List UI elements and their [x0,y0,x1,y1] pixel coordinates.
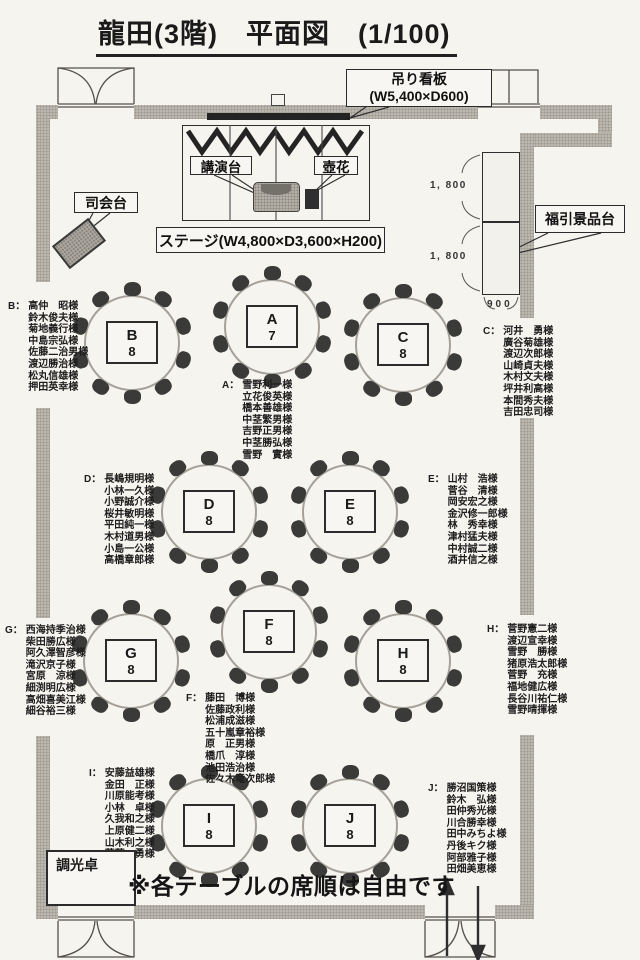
guest-names: 藤田 博様 佐藤政利様 松浦成滋様 五十嵐章裕様 原 正男様 橋爪 淳様 池田浩… [205,693,275,786]
dimension-1800-lower: 1, 800 [430,251,467,262]
table-count: 8 [128,344,135,359]
guest-names: 河井 勇様 廣谷菊雄様 渡辺次郎様 山崎貞夫様 木村文夫様 坪井利高様 本間秀夫… [503,326,553,419]
table-letter: A [267,311,278,328]
seat-shape [123,600,140,614]
guest-list-label: D： [84,474,101,567]
table-label-c: C 8 [377,323,429,366]
guest-list-label: G： [5,625,23,718]
seat-shape [395,284,412,298]
table-letter: C [398,329,409,346]
guest-names: 菅野憲二様 渡辺宣幸様 雪野 勝様 猪原浩太郎様 菅野 充様 福地健広様 長谷川… [507,624,567,717]
table-count: 8 [205,827,212,842]
table-label-e: E 8 [324,490,376,533]
mc-stand-callout: 司会台 [74,192,138,213]
table-letter: E [345,496,355,513]
seat-shape [342,765,359,779]
table-count: 8 [265,633,272,648]
door-bottom-left-icon [58,917,134,957]
seat-shape [201,559,218,573]
seat-shape [395,392,412,406]
table-label-j: J 8 [324,804,376,847]
table-label-d: D 8 [183,490,235,533]
guest-list-label: J： [428,783,444,876]
seat-shape [124,390,141,404]
table-letter: J [346,810,354,827]
dimmer-console-box: 調光卓 [46,850,136,906]
guest-names: 高仲 昭様 鈴木俊夫様 菊地義行様 中島宗弘様 佐藤二治男様 渡辺勝治様 松丸信… [28,301,88,394]
guest-list-b: B： 高仲 昭様 鈴木俊夫様 菊地義行様 中島宗弘様 佐藤二治男様 渡辺勝治様 … [8,301,88,394]
guest-list-d: D： 長嶋規明様 小林一久様 小野誠介様 桜井敏明様 平田純一様 木村道男様 小… [84,474,154,567]
door-top-left-icon [58,68,134,107]
podium-top-shape [261,184,291,195]
podium-callout: 講演台 [190,156,252,175]
floor-plan-scan: { "title": "龍田(3階) 平面図 (1/100)", "stage"… [0,0,640,960]
door-bottom-right-icon [425,917,495,957]
hanging-sign-bar [207,113,350,120]
seating-note: ※各テーブルの席順は自由です [128,867,455,901]
dimension-1800-upper: 1, 800 [430,180,467,191]
flower-vase-callout: 壺花 [314,156,358,175]
seat-shape [342,559,359,573]
guest-list-a: A： 雪野利一様 立花俊英様 橋本善雄様 中茎繁男様 吉野正男様 中茎勝弘様 雪… [222,380,292,461]
hanging-sign-label: 吊り看板 [391,71,447,88]
guest-list-label: C： [483,326,500,419]
table-count: 8 [346,827,353,842]
ceiling-fixture-icon [271,94,285,106]
guest-list-g: G： 西海持季治様 柴田勝広様 阿久澤智彦様 滝沢京子様 宮原 涼様 細渕明広様… [5,625,86,718]
flower-vase-shape [305,189,319,209]
guest-list-label: F： [186,693,202,786]
hanging-sign-size: (W5,400×D600) [369,88,468,105]
table-label-a: A 7 [246,305,298,348]
seat-shape [261,679,278,693]
table-count: 8 [205,513,212,528]
hanging-sign-callout: 吊り看板 (W5,400×D600) [346,69,492,107]
seat-shape [264,266,281,280]
table-label-b: B 8 [106,321,158,364]
seat-shape [123,708,140,722]
table-count: 8 [399,662,406,677]
table-letter: G [125,645,137,662]
stage-curtain-icon [188,131,362,152]
table-letter: F [264,616,273,633]
dimension-900: 900 [487,299,513,310]
guest-list-label: H： [487,624,504,717]
table-label-i: I 8 [183,804,235,847]
table-label-g: G 8 [105,639,157,682]
page-title: 龍田(3階) 平面図 (1/100) [96,12,457,57]
lecture-podium-shape [253,182,300,212]
guest-names: 山村 浩様 菅谷 清様 岡安宏之様 金沢修一郎様 林 秀幸様 津村猛夫様 中村誠… [448,474,508,567]
prize-table-callout: 福引景品台 [535,205,625,233]
stage-size-label: ステージ(W4,800×D3,600×H200) [156,227,385,253]
guest-list-c: C： 河井 勇様 廣谷菊雄様 渡辺次郎様 山崎貞夫様 木村文夫様 坪井利高様 本… [483,326,553,419]
table-count: 7 [268,328,275,343]
guest-names: 勝沼国策様 鈴木 弘様 田仲秀光様 川合勝幸様 田中みちよ様 丹後キク様 阿部雅… [447,783,507,876]
guest-list-label: E： [428,474,445,567]
table-count: 8 [127,662,134,677]
table-label-h: H 8 [377,639,429,682]
table-label-f: F 8 [243,610,295,653]
seat-shape [261,571,278,585]
seat-shape [395,600,412,614]
prize-table-shape [482,152,520,295]
table-letter: I [207,810,211,827]
table-letter: B [127,327,138,344]
table-count: 8 [399,346,406,361]
seat-shape [395,708,412,722]
guest-names: 安藤益雄様 金田 正様 川原能考様 小林 卓様 久我和之様 上原健二様 山木利之… [105,768,155,861]
guest-list-j: J： 勝沼国策様 鈴木 弘様 田仲秀光様 川合勝幸様 田中みちよ様 丹後キク様 … [428,783,507,876]
table-letter: D [204,496,215,513]
guest-list-f: F： 藤田 博様 佐藤政利様 松浦成滋様 五十嵐章裕様 原 正男様 橋爪 淳様 … [186,693,275,786]
guest-list-label: A： [222,380,239,461]
seat-shape [342,451,359,465]
guest-list-label: B： [8,301,25,394]
guest-list-i: I： 安藤益雄様 金田 正様 川原能考様 小林 卓様 久我和之様 上原健二様 山… [89,768,155,861]
table-letter: H [398,645,409,662]
guest-names: 長嶋規明様 小林一久様 小野誠介様 桜井敏明様 平田純一様 木村道男様 小島一公… [104,474,154,567]
guest-list-e: E： 山村 浩様 菅谷 清様 岡安宏之様 金沢修一郎様 林 秀幸様 津村猛夫様 … [428,474,508,567]
prize-table-divider [483,221,519,223]
guest-list-label: I： [89,768,102,861]
guest-list-h: H： 菅野憲二様 渡辺宣幸様 雪野 勝様 猪原浩太郎様 菅野 充様 福地健広様 … [487,624,567,717]
guest-names: 西海持季治様 柴田勝広様 阿久澤智彦様 滝沢京子様 宮原 涼様 細渕明広様 高畑… [26,625,86,718]
table-count: 8 [346,513,353,528]
seat-shape [201,451,218,465]
guest-names: 雪野利一様 立花俊英様 橋本善雄様 中茎繁男様 吉野正男様 中茎勝弘様 雪野 實… [242,380,292,461]
seat-shape [124,282,141,296]
